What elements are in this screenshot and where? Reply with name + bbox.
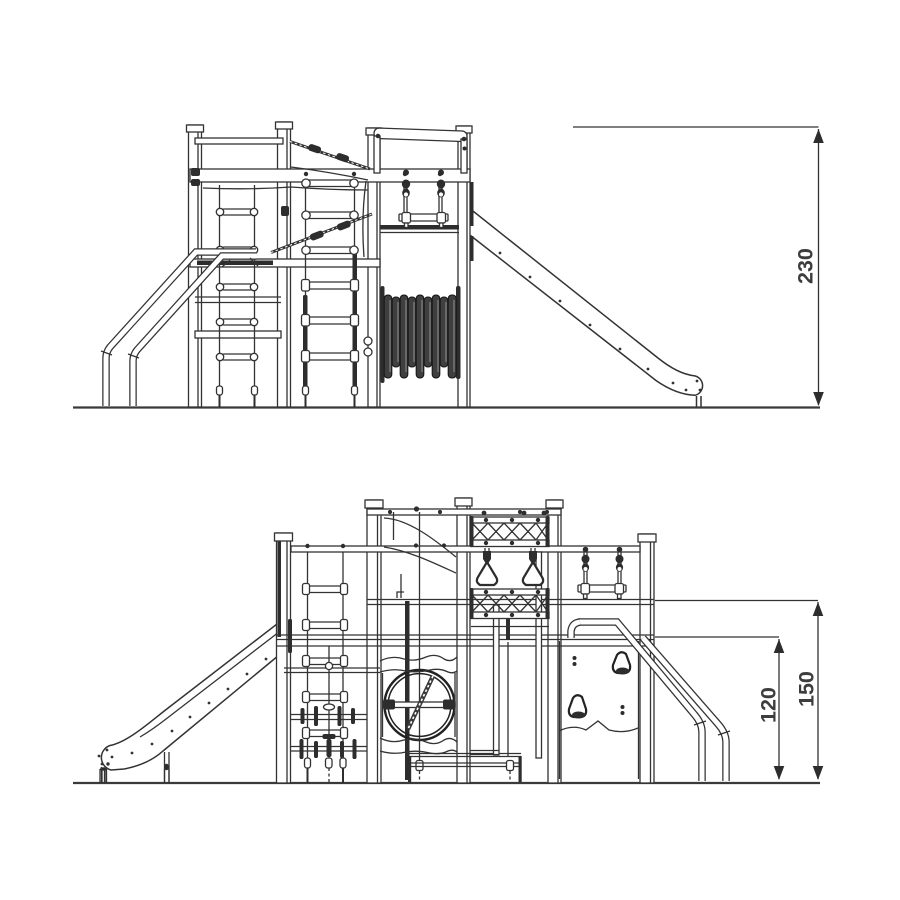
svg-text:230: 230 bbox=[794, 248, 818, 284]
svg-text:150: 150 bbox=[795, 671, 819, 707]
svg-text:120: 120 bbox=[757, 687, 781, 723]
